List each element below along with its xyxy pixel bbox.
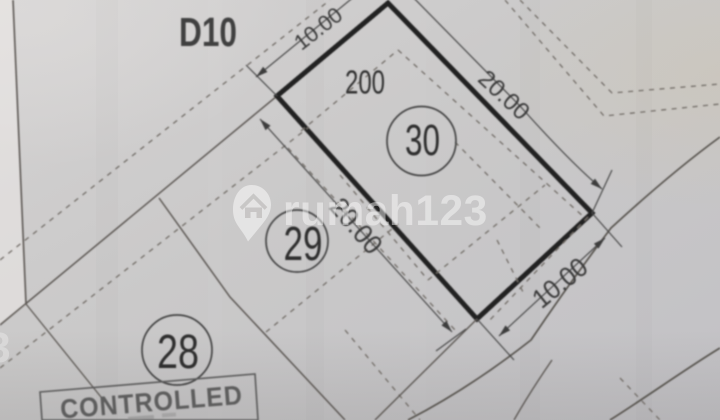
svg-text:3: 3 [0, 325, 11, 372]
svg-text:200: 200 [345, 64, 385, 101]
svg-text:rumah123: rumah123 [283, 188, 488, 235]
svg-text:30: 30 [405, 116, 440, 165]
svg-text:28: 28 [157, 325, 199, 379]
svg-text:D10: D10 [179, 9, 237, 55]
